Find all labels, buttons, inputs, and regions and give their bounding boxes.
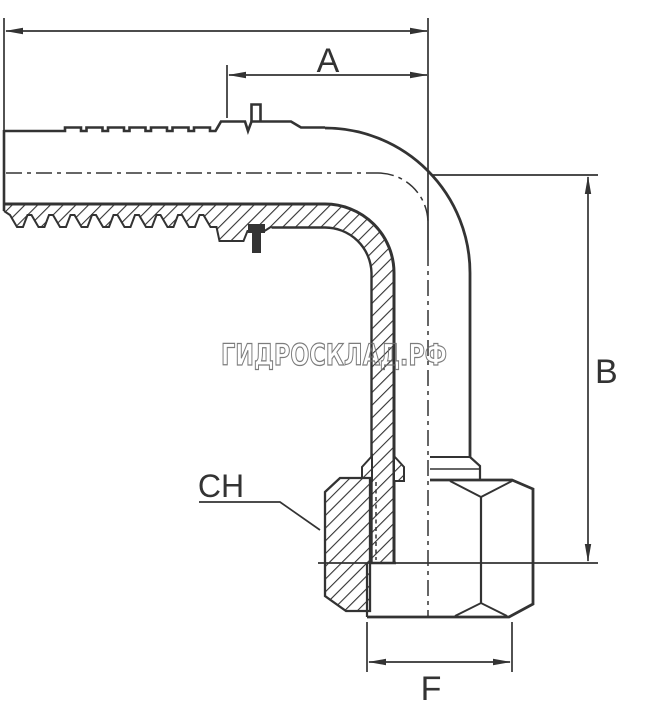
nut-section-hatch bbox=[325, 478, 370, 611]
technical-drawing-page: A B F CH ГИДРОСКЛАД.РФ bbox=[0, 0, 650, 708]
ch-leader-line bbox=[199, 502, 320, 530]
centerline-bend-arc bbox=[378, 173, 428, 223]
dimension-a-label: A bbox=[317, 42, 340, 80]
dimension-b-label: B bbox=[595, 353, 618, 391]
arrowhead-down bbox=[585, 544, 591, 562]
arrowhead-left bbox=[5, 28, 23, 34]
flare-wing-right bbox=[394, 456, 404, 481]
nut-chamfer-top bbox=[450, 481, 512, 497]
cone-chamfer bbox=[470, 457, 480, 479]
arrowhead-right bbox=[410, 72, 428, 78]
dimension-f: F bbox=[367, 622, 512, 708]
hex-nut bbox=[325, 478, 533, 617]
dimension-a: A bbox=[227, 42, 428, 118]
fitting-drawing-svg: A B F CH ГИДРОСКЛАД.РФ bbox=[0, 0, 650, 708]
dimension-f-label: F bbox=[421, 670, 442, 708]
watermark-text: ГИДРОСКЛАД.РФ bbox=[221, 338, 447, 372]
arrowhead-up bbox=[585, 176, 591, 194]
nut-chamfer-bottom bbox=[455, 603, 507, 616]
callout-ch: CH bbox=[198, 468, 320, 530]
arrowhead-left bbox=[228, 72, 246, 78]
elbow-outer-curve bbox=[325, 128, 470, 457]
arrowhead-right bbox=[493, 659, 511, 665]
callout-ch-label: CH bbox=[198, 468, 244, 504]
barb-ridges-profile bbox=[4, 122, 325, 132]
hose-barb-stem bbox=[4, 105, 470, 458]
stem-top-tab bbox=[252, 105, 261, 122]
crimp-notch-mark bbox=[248, 224, 265, 253]
arrowhead-right bbox=[410, 28, 428, 34]
arrowhead-left bbox=[368, 659, 386, 665]
